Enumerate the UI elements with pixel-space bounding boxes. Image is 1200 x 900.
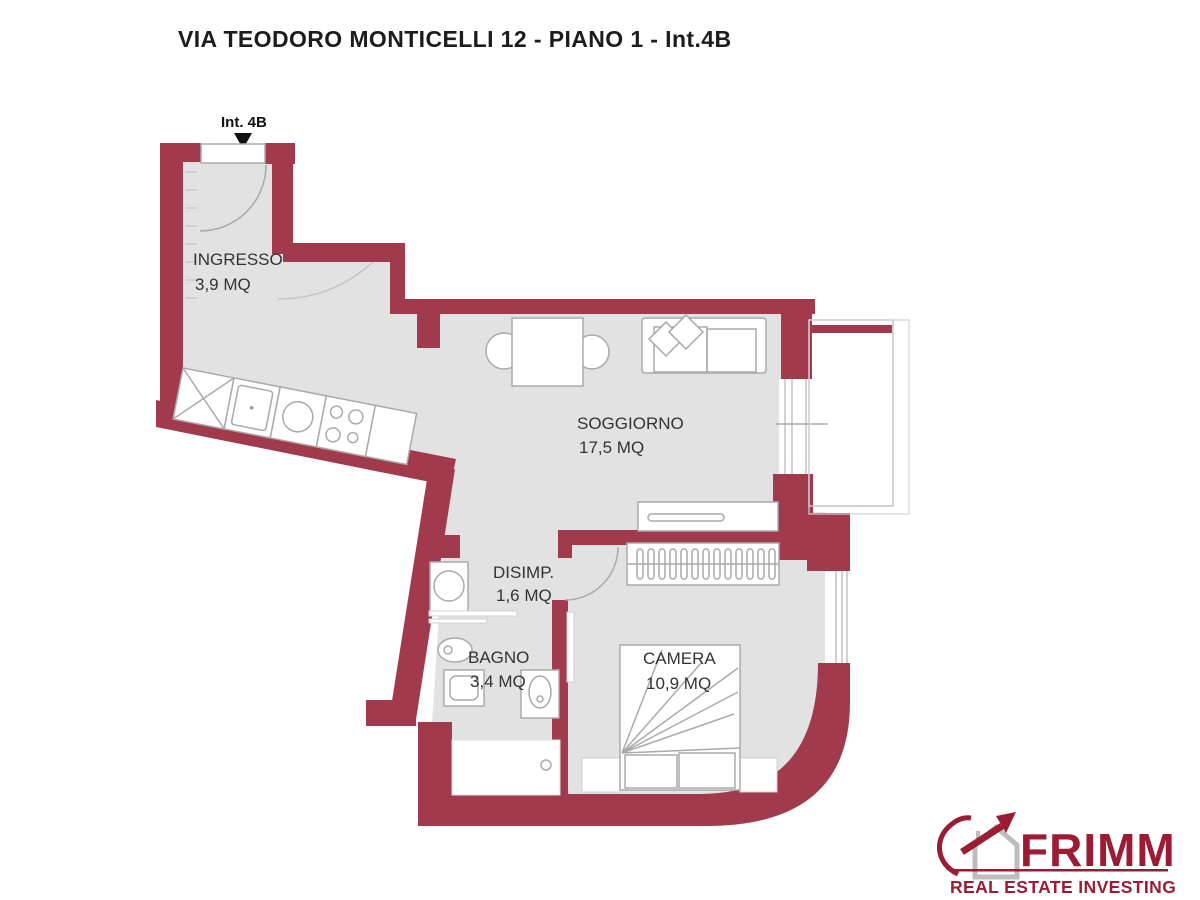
wall-segment (417, 314, 440, 348)
balcony-outer-outline (809, 320, 909, 514)
wall-segment (366, 700, 416, 726)
window-opening (779, 379, 812, 474)
sideboard (638, 502, 778, 531)
room-area-disimp: 1,6 MQ (496, 586, 552, 605)
window-frame-lines (836, 571, 847, 663)
brand-tagline: REAL ESTATE INVESTING (950, 877, 1176, 897)
room-area-ingresso: 3,9 MQ (195, 275, 251, 294)
shelf (429, 611, 517, 616)
wall-segment (272, 158, 293, 254)
shelf (429, 619, 487, 623)
page-title: VIA TEODORO MONTICELLI 12 - PIANO 1 - In… (178, 26, 731, 52)
balcony-door-leaf (812, 325, 892, 333)
wall-segment (283, 243, 405, 262)
door-frame (201, 144, 265, 163)
room-name-bagno: BAGNO (468, 648, 529, 667)
bedroom-window (836, 571, 847, 663)
room-name-soggiorno: SOGGIORNO (577, 414, 684, 433)
wall-segment (781, 299, 812, 379)
toilet (521, 670, 559, 718)
balcony (809, 320, 909, 514)
room-area-camera: 10,9 MQ (646, 674, 711, 693)
dining-table (512, 318, 583, 386)
kitchen-worktop (365, 405, 416, 464)
frimm-logo: FRIMM REAL ESTATE INVESTING (939, 812, 1176, 897)
wall-segment (807, 513, 850, 571)
wall-segment (418, 794, 710, 826)
room-name-disimp: DISIMP. (493, 563, 554, 582)
sideboard-body (638, 502, 778, 531)
room-name-camera: CAMERA (643, 649, 716, 668)
sofa (642, 315, 766, 373)
wall-segment (183, 143, 201, 162)
floorplan-page: VIA TEODORO MONTICELLI 12 - PIANO 1 - In… (0, 0, 1200, 900)
arrow-shaft-icon (962, 826, 1002, 852)
logo-underline (950, 869, 1168, 872)
wall-segment (558, 530, 572, 558)
wall-segment (418, 722, 452, 796)
wall-segment (160, 143, 183, 415)
sliding-door-panel (567, 612, 574, 682)
brand-name: FRIMM (1020, 824, 1176, 876)
balcony-inner-outline (809, 320, 893, 506)
nightstand (582, 758, 620, 792)
washing-machine (430, 562, 468, 612)
wall-segment (390, 299, 815, 314)
room-area-bagno: 3,4 MQ (470, 672, 526, 691)
room-area-soggiorno: 17,5 MQ (579, 438, 644, 457)
entrance-label: Int. 4B (221, 114, 267, 131)
nightstand (740, 758, 777, 792)
living-room-window (776, 379, 828, 474)
shower-area (452, 740, 560, 795)
room-name-ingresso: INGRESSO (193, 250, 283, 269)
bidet (438, 638, 472, 662)
floorplan-svg: VIA TEODORO MONTICELLI 12 - PIANO 1 - In… (0, 0, 1200, 900)
